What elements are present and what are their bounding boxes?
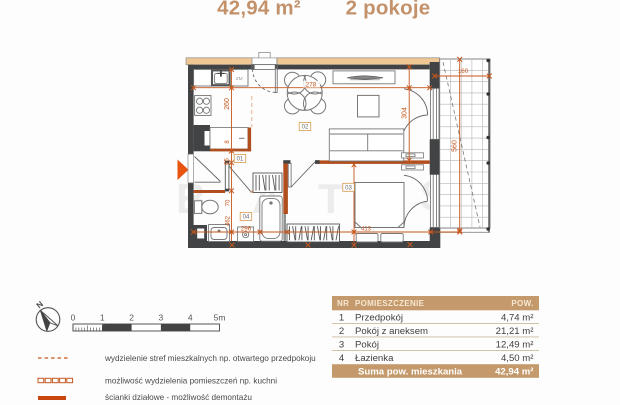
svg-text:ścianki działowe - możliwość d: ścianki działowe - możliwość demontażu [105, 393, 252, 400]
svg-text:2 pokoje: 2 pokoje [346, 0, 431, 20]
svg-text:4,50 m²: 4,50 m² [501, 353, 534, 364]
svg-text:5m: 5m [214, 313, 226, 323]
svg-text:Pokój z aneksem: Pokój z aneksem [355, 326, 428, 337]
svg-text:Łazienka: Łazienka [355, 353, 394, 364]
svg-text:65: 65 [225, 158, 231, 165]
svg-text:NR: NR [337, 299, 349, 308]
svg-text:1: 1 [100, 313, 105, 323]
svg-text:3: 3 [159, 313, 164, 323]
svg-text:4: 4 [188, 313, 193, 323]
svg-text:wydzielenie stref mieszkalnych: wydzielenie stref mieszkalnych np. otwar… [104, 354, 316, 363]
svg-text:Suma pow. mieszkania: Suma pow. mieszkania [358, 366, 463, 377]
svg-text:4: 4 [339, 353, 345, 364]
svg-text:4,74 m²: 4,74 m² [501, 312, 534, 323]
svg-text:304: 304 [402, 107, 409, 119]
svg-text:0: 0 [71, 313, 76, 323]
svg-text:21,21 m²: 21,21 m² [496, 326, 535, 337]
svg-text:POMIESZCZENIE: POMIESZCZENIE [355, 299, 425, 308]
svg-text:04: 04 [243, 215, 250, 221]
svg-text:02: 02 [302, 125, 309, 131]
svg-text:1: 1 [339, 312, 344, 323]
svg-text:70: 70 [226, 199, 232, 206]
svg-text:3: 3 [339, 339, 344, 350]
svg-text:413: 413 [361, 226, 372, 232]
svg-text:POW.: POW. [511, 299, 533, 308]
svg-text:możliwość wydzielenia pomieszc: możliwość wydzielenia pomieszczeń np. ku… [105, 377, 277, 386]
svg-text:03: 03 [345, 186, 352, 192]
svg-text:12,49 m²: 12,49 m² [496, 339, 535, 350]
svg-text:T: T [318, 175, 344, 222]
svg-text:260: 260 [224, 98, 231, 110]
svg-text:42,94 m²: 42,94 m² [495, 366, 533, 377]
svg-text:296: 296 [241, 226, 252, 233]
svg-text:560: 560 [452, 140, 459, 152]
svg-text:01: 01 [237, 157, 244, 163]
svg-text:42,94 m²: 42,94 m² [217, 0, 301, 20]
svg-text:Pokój: Pokój [355, 339, 379, 350]
svg-text:2: 2 [129, 313, 134, 323]
svg-text:2: 2 [339, 326, 344, 337]
svg-text:Przedpokój: Przedpokój [355, 312, 403, 323]
svg-text:278: 278 [306, 81, 317, 88]
svg-text:462: 462 [226, 215, 232, 226]
svg-text:ZM: ZM [236, 76, 243, 82]
